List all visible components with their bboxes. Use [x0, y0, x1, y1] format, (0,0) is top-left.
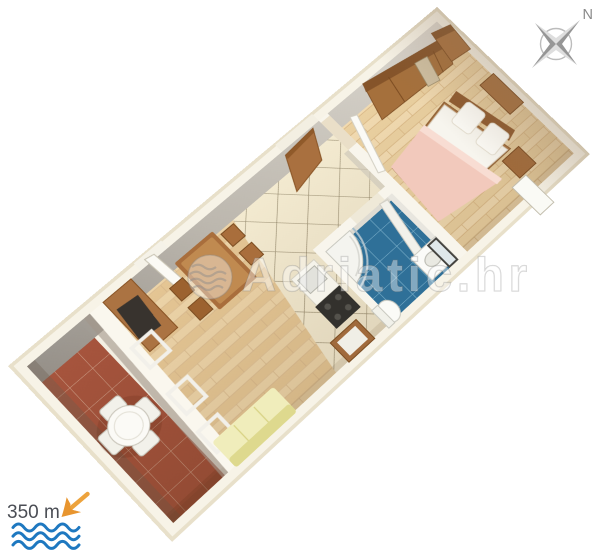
svg-text:350 m: 350 m: [7, 502, 60, 523]
svg-text:N: N: [583, 7, 593, 23]
svg-text:Adriatic.hr: Adriatic.hr: [242, 248, 532, 301]
